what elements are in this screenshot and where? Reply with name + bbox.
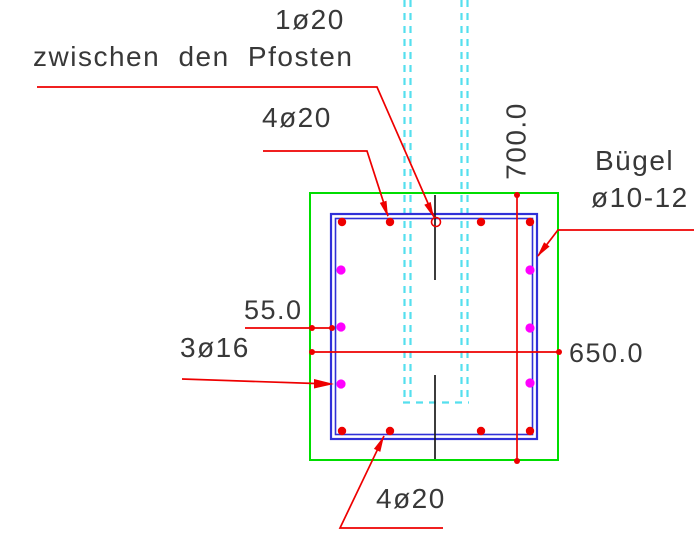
side-bar-dot xyxy=(525,378,534,387)
steel-post-right xyxy=(462,0,468,400)
leader-side-bars xyxy=(182,379,330,384)
dimension-cover-value: 55.0 xyxy=(244,296,303,324)
stirrup-outer xyxy=(331,214,537,439)
rebar-dot xyxy=(338,427,346,435)
rebar-dot xyxy=(477,218,485,226)
side-bar-dot xyxy=(336,379,345,388)
side-bar-dot xyxy=(336,322,345,331)
dimension-dot xyxy=(514,192,520,198)
section-drawing xyxy=(0,0,694,552)
label-stirrup-line2: ø10-12 xyxy=(591,183,689,212)
label-bottom-bars: 4ø20 xyxy=(376,484,446,513)
rebar-dot xyxy=(338,218,346,226)
dimension-dot xyxy=(556,349,562,355)
rebar-dot xyxy=(386,427,394,435)
dimension-width-value: 650.0 xyxy=(569,339,644,367)
arrowhead xyxy=(424,202,434,218)
side-rebar-dots xyxy=(336,265,534,388)
side-bar-dot xyxy=(336,265,345,274)
rebar-dot xyxy=(526,218,534,226)
cad-drawing-canvas: 1ø20 zwischen den Pfosten 4ø20 700.0 Büg… xyxy=(0,0,694,552)
dimension-dot xyxy=(329,325,335,331)
side-bar-dot xyxy=(525,265,534,274)
label-top-bars: 4ø20 xyxy=(262,103,332,132)
label-post-bar: 1ø20 xyxy=(275,5,345,34)
leader-bottom-bars xyxy=(340,436,443,528)
rebar-dot xyxy=(526,427,534,435)
concrete-outline xyxy=(310,193,558,460)
leader-stirrup xyxy=(538,230,694,256)
label-side-bars: 3ø16 xyxy=(180,333,250,362)
dimension-dot xyxy=(309,325,315,331)
label-stirrup-line1: Bügel xyxy=(595,146,674,175)
steel-post-left xyxy=(405,0,411,400)
label-post-bar-sub: zwischen den Pfosten xyxy=(33,42,353,71)
leader-top-bars xyxy=(263,151,388,216)
leader-post-bar xyxy=(37,87,434,217)
rebar-dot xyxy=(477,427,485,435)
side-bar-dot xyxy=(525,323,534,332)
dimension-dot xyxy=(309,349,315,355)
dimension-height-value: 700.0 xyxy=(501,102,530,180)
rebar-dot xyxy=(386,218,394,226)
dimension-dot xyxy=(514,458,520,464)
